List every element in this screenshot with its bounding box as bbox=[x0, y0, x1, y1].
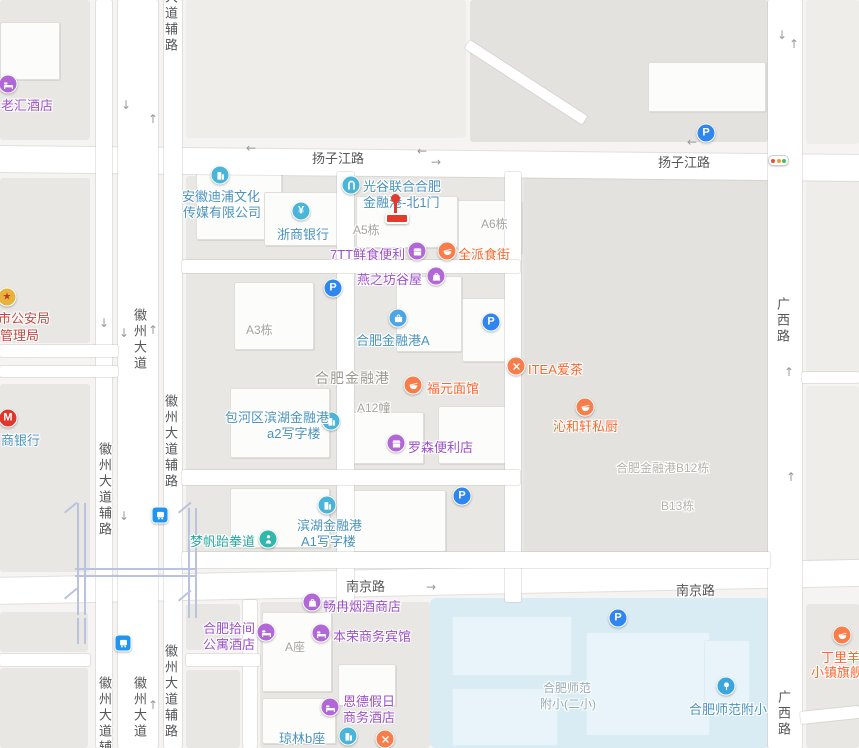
building-footprint bbox=[234, 282, 314, 350]
changran-tobacco-bag-icon[interactable] bbox=[303, 593, 322, 612]
road-direction-arrow-up: ↑ bbox=[784, 366, 794, 378]
binhu-a1-office-label[interactable]: A1写字楼 bbox=[301, 531, 356, 550]
road-direction-arrow-up: ↑ bbox=[148, 113, 158, 125]
road-label: 徽州大道 bbox=[130, 308, 149, 372]
hefei-shijian-apartment-label[interactable]: 公寓酒店 bbox=[203, 634, 255, 653]
parking-icon[interactable]: P bbox=[453, 487, 472, 506]
qinhexuan-kitchen-bowl-icon[interactable] bbox=[576, 398, 595, 417]
baohequ-a2-office-label[interactable]: a2写字楼 bbox=[267, 423, 320, 442]
hefei-financial-port-a-case-icon[interactable] bbox=[389, 309, 408, 328]
road-label: 南京路 bbox=[676, 580, 715, 599]
lawson-store-label[interactable]: 罗森便利店 bbox=[408, 437, 473, 456]
restaurant-unnamed-xfork-icon[interactable] bbox=[376, 730, 395, 748]
city-block bbox=[806, 386, 859, 574]
dingliyang-flagship-bowl-icon[interactable] bbox=[833, 626, 852, 645]
parking-icon[interactable]: P bbox=[697, 124, 716, 143]
school-building-footprint bbox=[704, 640, 750, 706]
area-label: 合肥金融港 bbox=[315, 368, 390, 388]
traffic-light-icon bbox=[768, 155, 789, 166]
zheshang-bank-bank-icon[interactable]: ¥ bbox=[292, 202, 311, 221]
binhu-a1-office-building-icon[interactable] bbox=[318, 496, 337, 515]
qinhexuan-kitchen-label[interactable]: 沁和轩私厨 bbox=[553, 416, 618, 435]
laohui-hotel-label[interactable]: 老汇酒店 bbox=[1, 95, 53, 114]
road-direction-arrow-right: → bbox=[431, 156, 441, 168]
road-segment bbox=[182, 470, 520, 485]
road-direction-arrow-up: ↑ bbox=[786, 471, 796, 483]
dingliyang-flagship-label[interactable]: 小镇旗舰 bbox=[811, 662, 859, 681]
cmb-bank-label[interactable]: 商银行 bbox=[1, 430, 40, 449]
area-label: B13栋 bbox=[661, 497, 694, 514]
qionglin-b-building-icon[interactable] bbox=[339, 727, 358, 746]
road-label: 扬子江路 bbox=[312, 148, 364, 167]
road-direction-arrow-right: → bbox=[426, 581, 436, 593]
itea-tea-label[interactable]: ITEA爱茶 bbox=[528, 359, 583, 378]
area-label: 附小(二小) bbox=[540, 695, 596, 712]
road-segment bbox=[0, 345, 118, 357]
quanpai-food-street-bowl-icon[interactable] bbox=[438, 242, 457, 261]
road-direction-arrow-down: ↓ bbox=[777, 29, 787, 41]
parking-icon[interactable]: P bbox=[482, 313, 501, 332]
city-block bbox=[186, 0, 466, 138]
road-segment bbox=[164, 0, 182, 748]
map-canvas[interactable]: ↓↑←←→←↓↑↓↓↑↓↑→↑↑ 扬子江路扬子江路南京路南京路大道辅路徽州大道徽… bbox=[0, 0, 859, 748]
road-direction-arrow-down: ↓ bbox=[121, 99, 131, 111]
metro-line-segment bbox=[77, 503, 79, 615]
road-segment bbox=[182, 552, 770, 568]
metro-line-segment bbox=[75, 575, 197, 577]
guanggu-north-gate-1-gate-icon[interactable] bbox=[342, 176, 361, 195]
quanpai-food-street-label[interactable]: 全派食街 bbox=[458, 244, 510, 263]
road-segment bbox=[186, 654, 260, 666]
fuyuan-noodle-bowl-icon[interactable] bbox=[404, 376, 423, 395]
benrong-hotel-label[interactable]: 本荣商务宾馆 bbox=[333, 626, 411, 645]
lawson-store-store-icon[interactable] bbox=[387, 434, 406, 453]
road-label: 扬子江路 bbox=[658, 152, 710, 171]
road-segment bbox=[0, 366, 118, 377]
area-label: A12幢 bbox=[357, 399, 390, 416]
area-label: 合肥师范 bbox=[543, 679, 591, 696]
bus-station-icon[interactable] bbox=[115, 635, 132, 652]
metro-line-segment bbox=[84, 503, 86, 615]
metro-line-segment bbox=[84, 618, 86, 644]
area-label: A6栋 bbox=[481, 215, 508, 232]
area-label: A座 bbox=[285, 638, 305, 655]
road-label: 徽州大道辅路 bbox=[161, 644, 180, 740]
road-direction-arrow-up: ↑ bbox=[148, 699, 158, 711]
changran-tobacco-label[interactable]: 畅冉烟酒商店 bbox=[323, 596, 401, 615]
building-footprint bbox=[0, 22, 60, 80]
anhui-dipu-media-label[interactable]: 传媒有限公司 bbox=[183, 202, 261, 221]
hefei-financial-port-a-label[interactable]: 合肥金融港A bbox=[356, 330, 430, 349]
city-block bbox=[806, 176, 859, 372]
road-direction-arrow-down: ↓ bbox=[99, 317, 109, 329]
road-label: 徽州大道 bbox=[130, 676, 149, 740]
qionglin-b-label[interactable]: 琼林b座 bbox=[279, 728, 325, 747]
road-direction-arrow-left: ← bbox=[246, 142, 256, 154]
road-direction-arrow-left: ← bbox=[687, 136, 697, 148]
anhui-dipu-media-building-icon[interactable] bbox=[211, 166, 230, 185]
road-segment bbox=[505, 172, 521, 602]
metro-line-segment bbox=[77, 618, 79, 644]
road-label: 徽州大道辅路 bbox=[161, 394, 180, 490]
parking-icon[interactable]: P bbox=[609, 609, 628, 628]
7tt-fresh-food-store-icon[interactable] bbox=[408, 242, 427, 261]
city-block bbox=[0, 668, 88, 748]
road-segment bbox=[0, 654, 90, 666]
road-label: 徽州大道辅路 bbox=[95, 676, 114, 748]
building-footprint bbox=[648, 62, 766, 112]
school-building-footprint bbox=[586, 632, 710, 736]
police-bureau-label[interactable]: 管理局 bbox=[0, 325, 39, 344]
mengfan-taekwondo-label[interactable]: 梦帆跆拳道 bbox=[190, 531, 255, 550]
itea-tea-xfork-icon[interactable] bbox=[507, 357, 526, 376]
road-segment bbox=[802, 372, 859, 383]
city-block bbox=[806, 0, 859, 144]
school-building-footprint bbox=[452, 616, 572, 676]
benrong-hotel-bed-icon[interactable] bbox=[312, 624, 331, 643]
zheshang-bank-label[interactable]: 浙商银行 bbox=[277, 224, 329, 243]
road-direction-arrow-left: ← bbox=[417, 145, 427, 157]
parking-icon[interactable]: P bbox=[324, 279, 343, 298]
hefei-normal-primary-label[interactable]: 合肥师范附小 bbox=[689, 699, 767, 718]
city-block bbox=[186, 670, 240, 748]
road-direction-arrow-up: ↑ bbox=[148, 324, 158, 336]
metro-line-segment bbox=[195, 508, 197, 618]
7tt-fresh-food-label[interactable]: 7TT鲜食便利 bbox=[330, 244, 405, 263]
road-label: 广西路 bbox=[773, 297, 792, 345]
yanzhifang-guwu-bag-icon[interactable] bbox=[427, 267, 446, 286]
road-direction-arrow-down: ↓ bbox=[119, 510, 129, 522]
bus-station-icon[interactable] bbox=[152, 507, 169, 524]
road-label: 徽州大道辅路 bbox=[95, 442, 114, 538]
road-label: 广西路 bbox=[774, 690, 793, 738]
ende-holiday-hotel-bed-icon[interactable] bbox=[321, 698, 340, 717]
yanzhifang-guwu-label[interactable]: 燕之坊谷屋 bbox=[357, 269, 422, 288]
area-label: A5栋 bbox=[353, 221, 380, 238]
destination-pin-icon[interactable] bbox=[384, 194, 408, 226]
area-label: A3栋 bbox=[246, 321, 273, 338]
metro-line-segment bbox=[188, 508, 190, 618]
mengfan-taekwondo-person-icon[interactable] bbox=[259, 530, 278, 549]
road-direction-arrow-up: ↑ bbox=[789, 38, 799, 50]
road-direction-arrow-down: ↓ bbox=[119, 327, 129, 339]
hefei-normal-primary-school-icon[interactable] bbox=[717, 677, 736, 696]
hefei-shijian-apartment-bed-icon[interactable] bbox=[257, 623, 276, 642]
ende-holiday-hotel-label[interactable]: 商务酒店 bbox=[343, 707, 395, 726]
fuyuan-noodle-label[interactable]: 福元面馆 bbox=[427, 378, 479, 397]
metro-line-segment bbox=[75, 568, 197, 570]
road-label: 大道辅路 bbox=[161, 0, 180, 54]
road-label: 南京路 bbox=[346, 576, 385, 595]
city-block bbox=[0, 612, 88, 652]
area-label: 合肥金融港B12栋 bbox=[616, 459, 709, 476]
